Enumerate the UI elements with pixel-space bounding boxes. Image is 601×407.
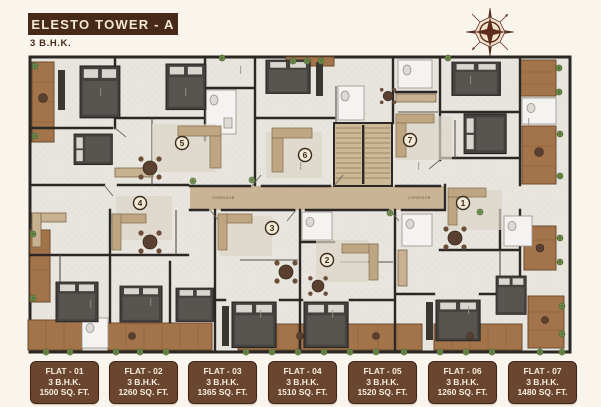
flat-card-02: FLAT - 02 3 B.H.K. 1260 SQ. FT.: [109, 361, 178, 404]
flat-card-04: FLAT - 04 3 B.H.K. 1510 SQ. FT.: [268, 361, 337, 404]
svg-text:CORRIDOR: CORRIDOR: [212, 196, 235, 200]
flat-card-area: 1500 SQ. FT.: [39, 388, 89, 398]
flat-card-03: FLAT - 03 3 B.H.K. 1365 SQ. FT.: [188, 361, 257, 404]
flat-card-type: 3 B.H.K.: [48, 378, 81, 388]
flat-card-title: FLAT - 07: [523, 367, 561, 377]
floor-plan-sheet: ELESTO TOWER - A 3 B.H.K.: [0, 0, 601, 407]
flat-card-area: 1480 SQ. FT.: [517, 388, 567, 398]
flat-card-area: 1260 SQ. FT.: [437, 388, 487, 398]
svg-text:6: 6: [303, 150, 308, 160]
flat-card-type: 3 B.H.K.: [526, 378, 559, 388]
svg-text:2: 2: [325, 255, 330, 265]
flat-card-type: 3 B.H.K.: [446, 378, 479, 388]
flat-marker-2: 2: [321, 254, 334, 267]
flat-card-05: FLAT - 05 3 B.H.K. 1520 SQ. FT.: [348, 361, 417, 404]
flat-marker-4: 4: [134, 197, 147, 210]
flat-card-area: 1365 SQ. FT.: [197, 388, 247, 398]
flat-card-area: 1260 SQ. FT.: [118, 388, 168, 398]
flat-marker-1: 1: [457, 197, 470, 210]
flat-card-type: 3 B.H.K.: [366, 378, 399, 388]
svg-text:CORRIDOR: CORRIDOR: [408, 196, 431, 200]
flat-card-06: FLAT - 06 3 B.H.K. 1260 SQ. FT.: [428, 361, 497, 404]
flat-card-area: 1520 SQ. FT.: [357, 388, 407, 398]
flat-card-01: FLAT - 01 3 B.H.K. 1500 SQ. FT.: [30, 361, 99, 404]
svg-text:7: 7: [408, 135, 413, 145]
flat-card-area: 1510 SQ. FT.: [277, 388, 327, 398]
flat-card-title: FLAT - 03: [203, 367, 241, 377]
flat-marker-5: 5: [176, 137, 189, 150]
flat-card-title: FLAT - 05: [363, 367, 401, 377]
svg-text:1: 1: [461, 198, 466, 208]
svg-text:4: 4: [138, 198, 143, 208]
flat-card-title: FLAT - 01: [45, 367, 83, 377]
staircase: [334, 123, 392, 186]
flat-card-title: FLAT - 06: [443, 367, 481, 377]
floor-plan: CORRIDOR CORRIDOR: [0, 0, 601, 407]
flat-marker-3: 3: [266, 222, 279, 235]
flat-marker-6: 6: [299, 149, 312, 162]
flat-card-title: FLAT - 04: [283, 367, 321, 377]
svg-text:3: 3: [270, 223, 275, 233]
flat-card-type: 3 B.H.K.: [127, 378, 160, 388]
flat-card-type: 3 B.H.K.: [206, 378, 239, 388]
flat-marker-7: 7: [404, 134, 417, 147]
flat-card-07: FLAT - 07 3 B.H.K. 1480 SQ. FT.: [508, 361, 577, 404]
flat-card-title: FLAT - 02: [124, 367, 162, 377]
flat-card-type: 3 B.H.K.: [286, 378, 319, 388]
svg-text:5: 5: [180, 138, 185, 148]
